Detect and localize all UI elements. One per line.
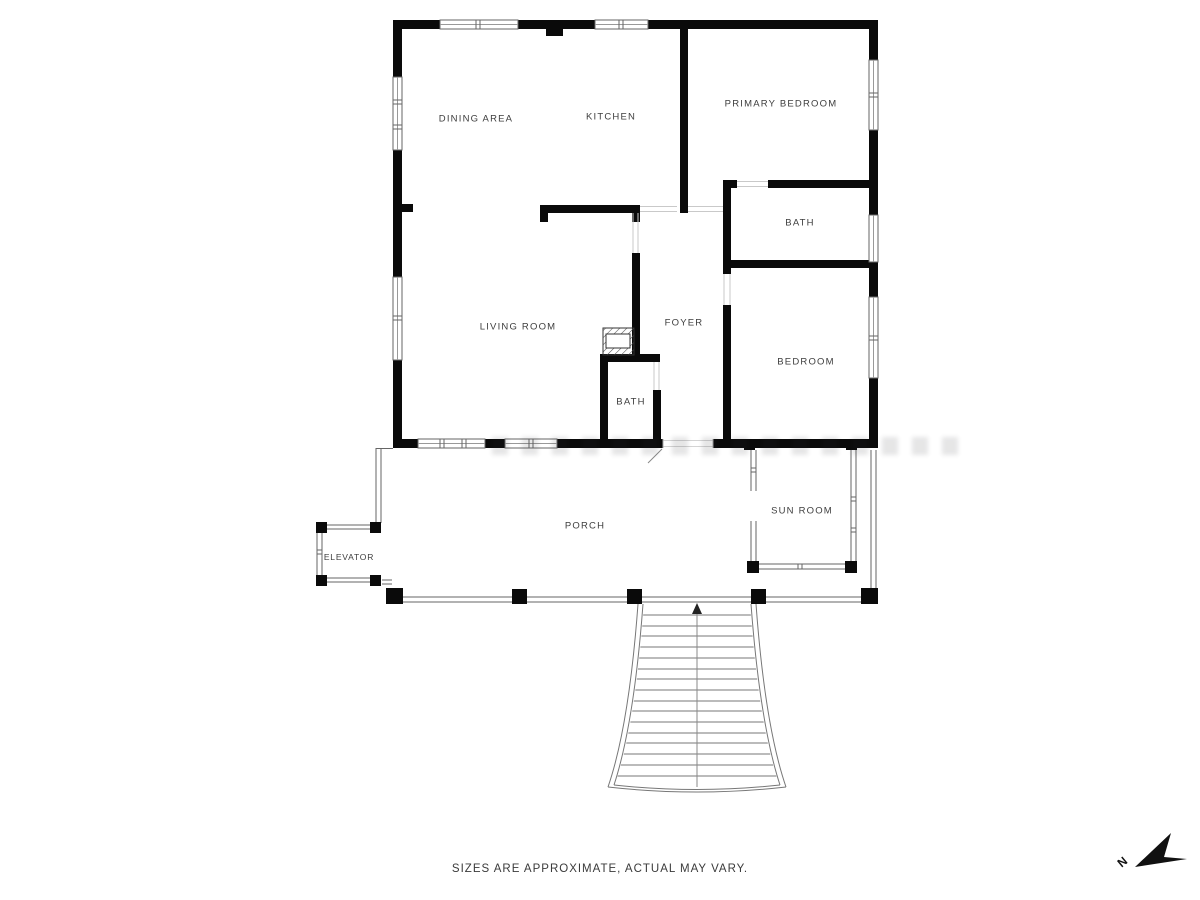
window-right-primary bbox=[869, 60, 878, 130]
north-arrow-icon bbox=[1135, 833, 1187, 867]
wall-bath-upper-left bbox=[723, 180, 731, 268]
door-swing bbox=[648, 449, 662, 463]
wall-kitchen-bottom bbox=[540, 205, 640, 213]
room-label-elevator: ELEVATOR bbox=[324, 552, 374, 562]
window-right-bath bbox=[869, 215, 878, 262]
room-label-bedroom: BEDROOM bbox=[777, 357, 835, 368]
disclaimer-text: SIZES ARE APPROXIMATE, ACTUAL MAY VARY. bbox=[452, 863, 748, 875]
room-label-foyer: FOYER bbox=[665, 318, 704, 329]
fireplace bbox=[603, 328, 634, 355]
wall-bedroom-left bbox=[723, 305, 731, 440]
wall-bath-lower-left bbox=[600, 362, 608, 440]
window-bottom-living-1 bbox=[418, 439, 485, 448]
top-wall-bump bbox=[546, 29, 563, 36]
room-label-bath-lower: BATH bbox=[616, 397, 645, 408]
room-label-kitchen: KITCHEN bbox=[586, 112, 636, 123]
window-top-dining bbox=[440, 20, 518, 29]
wall-bath-lower-right bbox=[653, 390, 661, 440]
interior-walls bbox=[401, 28, 869, 440]
window-left-living bbox=[393, 277, 402, 360]
window-top-kitchen bbox=[595, 20, 648, 29]
exterior-walls bbox=[393, 20, 878, 448]
staircase bbox=[600, 603, 795, 792]
wall-bedroom-top bbox=[723, 260, 869, 268]
windows bbox=[393, 20, 878, 448]
floor-plan-page: DINING AREA KITCHEN PRIMARY BEDROOM BATH… bbox=[0, 0, 1200, 900]
room-label-living-room: LIVING ROOM bbox=[480, 322, 557, 333]
porch-railing bbox=[376, 448, 876, 602]
room-label-porch: PORCH bbox=[565, 521, 605, 532]
window-left-dining bbox=[393, 77, 402, 150]
floor-plan-drawing bbox=[0, 0, 1200, 900]
wall-kitchen-primary bbox=[680, 28, 688, 213]
room-label-dining-area: DINING AREA bbox=[439, 114, 513, 125]
wall-dining-stub bbox=[401, 204, 413, 212]
wall-bath-upper-top-right bbox=[768, 180, 869, 188]
room-label-sun-room: SUN ROOM bbox=[771, 506, 833, 517]
window-bottom-living-2 bbox=[505, 439, 557, 448]
stair-up-arrow-icon bbox=[692, 603, 702, 614]
room-label-bath-upper: BATH bbox=[785, 218, 814, 229]
window-right-bedroom bbox=[869, 297, 878, 378]
room-label-primary-bedroom: PRIMARY BEDROOM bbox=[725, 99, 838, 110]
